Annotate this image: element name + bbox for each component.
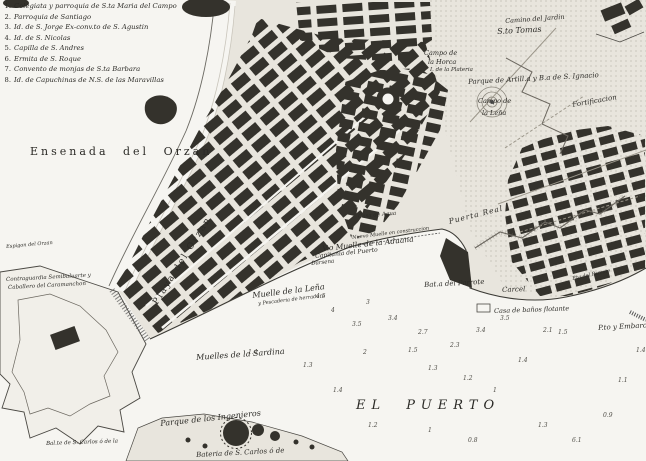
depth-sounding: 1 [493,388,497,394]
depth-sounding: 1.2 [463,376,473,382]
depth-sounding: 1.3 [303,363,313,369]
depth-sounding: 3.5 [352,322,362,328]
depth-sounding: 0.9 [603,413,613,419]
label-campo-de-la-lena-1: Campo de [478,98,511,105]
depth-sounding: 1.5 [408,348,418,354]
depth-sounding: 1.2 [368,423,378,429]
depth-sounding: 2.7 [418,330,428,336]
legend-item: 8.Id. de Capuchinas de N.S. de las Marav… [4,77,244,84]
depth-sounding: 1.5 [558,330,568,336]
label-plateria: I. de la Plateria [430,68,473,74]
bath-house-symbol [477,304,490,312]
label-ensenada-del-orzan: Ensenada del Orzan [30,146,212,157]
label-campo-de-la-lena-2: la Leña [482,110,506,117]
depth-sounding: 1.4 [518,358,528,364]
depth-sounding: 1.1 [618,378,628,384]
depth-sounding: 4.5 [316,294,326,300]
legend-item: 7.Convento de monjas de S.ta Barbara [4,66,244,73]
legend-item: 6.Ermita de S. Roque [4,56,244,63]
depth-sounding: 1.4 [636,348,646,354]
label-campo-de-la-horca-1: Campo de [424,50,457,57]
depth-sounding: 1.4 [333,388,343,394]
depth-sounding: 1.4 [248,350,258,356]
depth-sounding: 1.3 [538,423,548,429]
depth-sounding: 1.3 [428,366,438,372]
depth-sounding: 3.5 [500,316,510,322]
legend-item: 2.Parroquia de Santiago [4,14,244,21]
legend-item: 5.Capilla de S. Andres [4,45,244,52]
label-campo-de-la-horca-2: la Horca [428,59,456,66]
park-trees [223,420,249,446]
historic-port-map: 1.Colegiata y parroquia de S.ta Maria de… [0,0,646,461]
depth-sounding: 3 [366,300,370,306]
round-convent [380,91,397,108]
depth-sounding: 6.1 [572,438,582,444]
legend-item: 1.Colegiata y parroquia de S.ta Maria de… [4,3,244,10]
depth-sounding: 2.1 [543,328,553,334]
depth-sounding: 3.4 [388,316,398,322]
depth-sounding: 3.4 [476,328,486,334]
depth-sounding: 1 [428,428,432,434]
map-legend: 1.Colegiata y parroquia de S.ta Maria de… [4,3,244,87]
depth-sounding: 0.8 [468,438,478,444]
old-town-blocks [505,126,645,296]
legend-item: 4.Id. de S. Nicolas [4,35,244,42]
depth-sounding: 2.3 [450,343,460,349]
legend-item: 3.Id. de S. Jorge Ex-conv.to de S. Agust… [4,24,244,31]
label-el-puerto: EL PUERTO [356,399,500,412]
depth-sounding: 2 [363,350,367,356]
depth-sounding: 4 [331,308,335,314]
label-carcel: Carcel [502,286,525,294]
